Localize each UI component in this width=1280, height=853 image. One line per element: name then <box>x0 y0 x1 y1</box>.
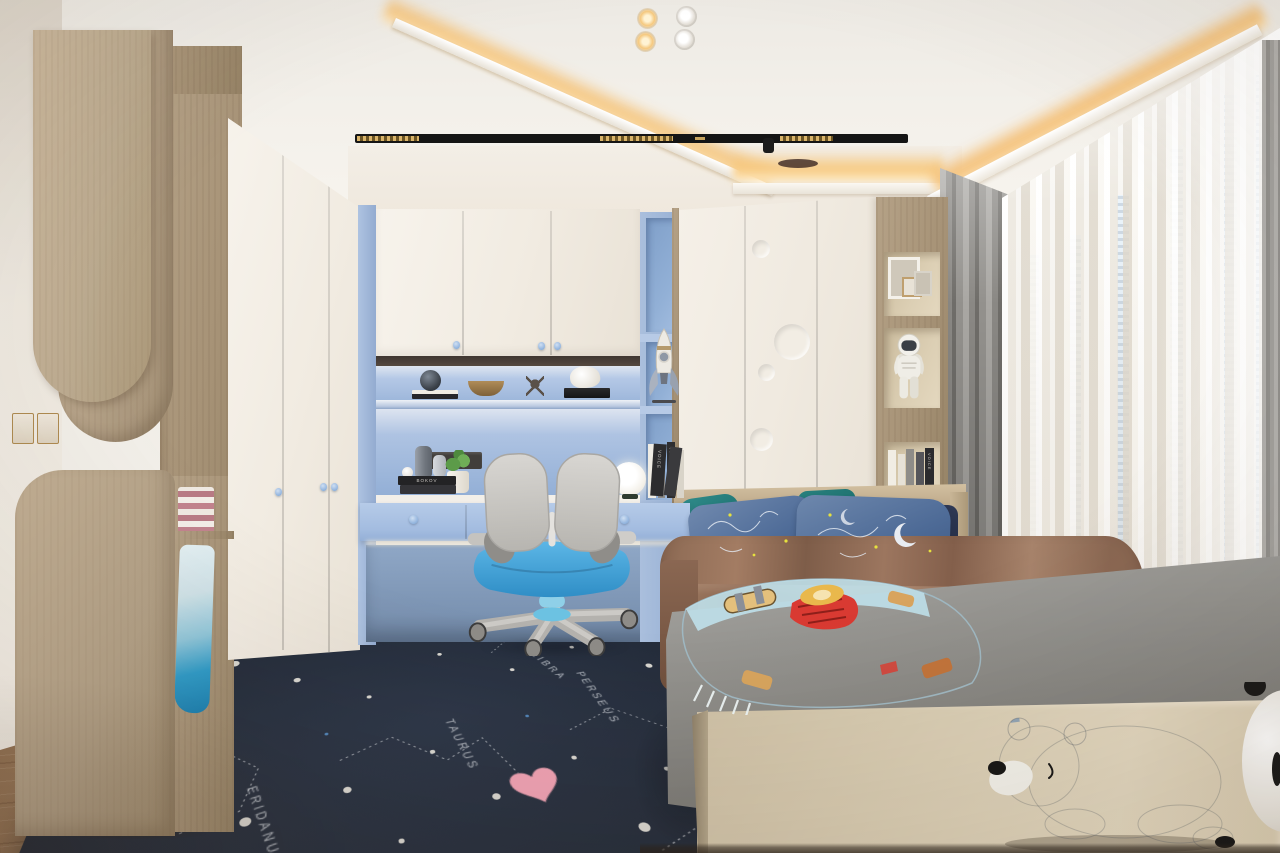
door-circle-detail <box>752 240 770 258</box>
cartoon-throw-blanket <box>672 565 1002 715</box>
door-circle-detail <box>758 364 775 381</box>
wardrobe-knob <box>275 488 282 496</box>
rug-label: TAURUS <box>442 718 483 772</box>
decor-books-flat <box>412 390 458 399</box>
cabinet-knob <box>538 342 545 350</box>
lower-cabinet-front <box>15 470 175 836</box>
platform-front-shadow <box>640 843 1280 853</box>
desk-jar <box>415 446 432 477</box>
wall-switch <box>12 413 59 444</box>
recessed-spotlight-lit <box>637 8 658 29</box>
cove-ledge-back <box>733 183 943 194</box>
track-led-module <box>780 136 833 141</box>
door-circle-detail <box>774 324 810 360</box>
cabinet-door-seam <box>462 211 464 355</box>
wardrobe-door-seam <box>744 206 746 506</box>
decor-scissors-sculpture <box>526 376 544 396</box>
track-led-module <box>357 136 419 141</box>
wardrobe-door-seam <box>816 200 818 500</box>
decor-book-black <box>564 388 610 398</box>
curved-column-front <box>33 30 151 402</box>
astronaut-figurine <box>890 332 928 402</box>
wardrobe-knob <box>320 483 327 491</box>
desk-chair <box>448 448 656 656</box>
cabinet-knob <box>554 342 561 350</box>
recessed-spotlight <box>674 29 695 50</box>
folded-clothes <box>178 487 214 533</box>
drawer-knob <box>409 515 418 524</box>
rocket-model <box>646 326 682 406</box>
track-connector <box>695 137 705 140</box>
gray-curtain-right-edge <box>1262 40 1280 605</box>
cabinet-knob <box>453 341 460 349</box>
track-light-rail <box>355 134 908 143</box>
track-spotlight-cylinder <box>763 138 774 153</box>
desk-upper-cabinets <box>376 209 640 357</box>
desk-shelf-board <box>376 400 640 409</box>
panda-ball <box>1238 682 1280 837</box>
picture-frame-small <box>914 271 932 296</box>
bedroom-render: BOKOV VOICE VOICE <box>0 0 1280 853</box>
smoke-detector <box>778 159 818 168</box>
rug-heart <box>506 766 568 808</box>
cubby-shelf-board <box>172 531 234 539</box>
bed-wardrobe <box>678 196 888 514</box>
decor-sphere <box>420 370 441 391</box>
hanging-clothes <box>174 544 215 713</box>
cabinet-door-seam <box>550 211 552 355</box>
cabinet-underside-strip <box>376 356 640 366</box>
wardrobe-door-seam <box>328 182 330 652</box>
book-spine-text: VOICE <box>656 450 662 469</box>
wardrobe-door-seam <box>282 150 284 650</box>
wardrobe-knob <box>331 483 338 491</box>
book-spine-text: VOICE <box>927 453 932 470</box>
door-circle-detail <box>750 428 773 451</box>
track-led-module <box>600 136 673 141</box>
recessed-spotlight-lit <box>635 31 656 52</box>
bear-plush <box>975 702 1245 852</box>
rug-label: ERIDANUS <box>244 784 289 853</box>
cove-light-back <box>733 150 943 182</box>
recessed-spotlight <box>676 6 697 27</box>
